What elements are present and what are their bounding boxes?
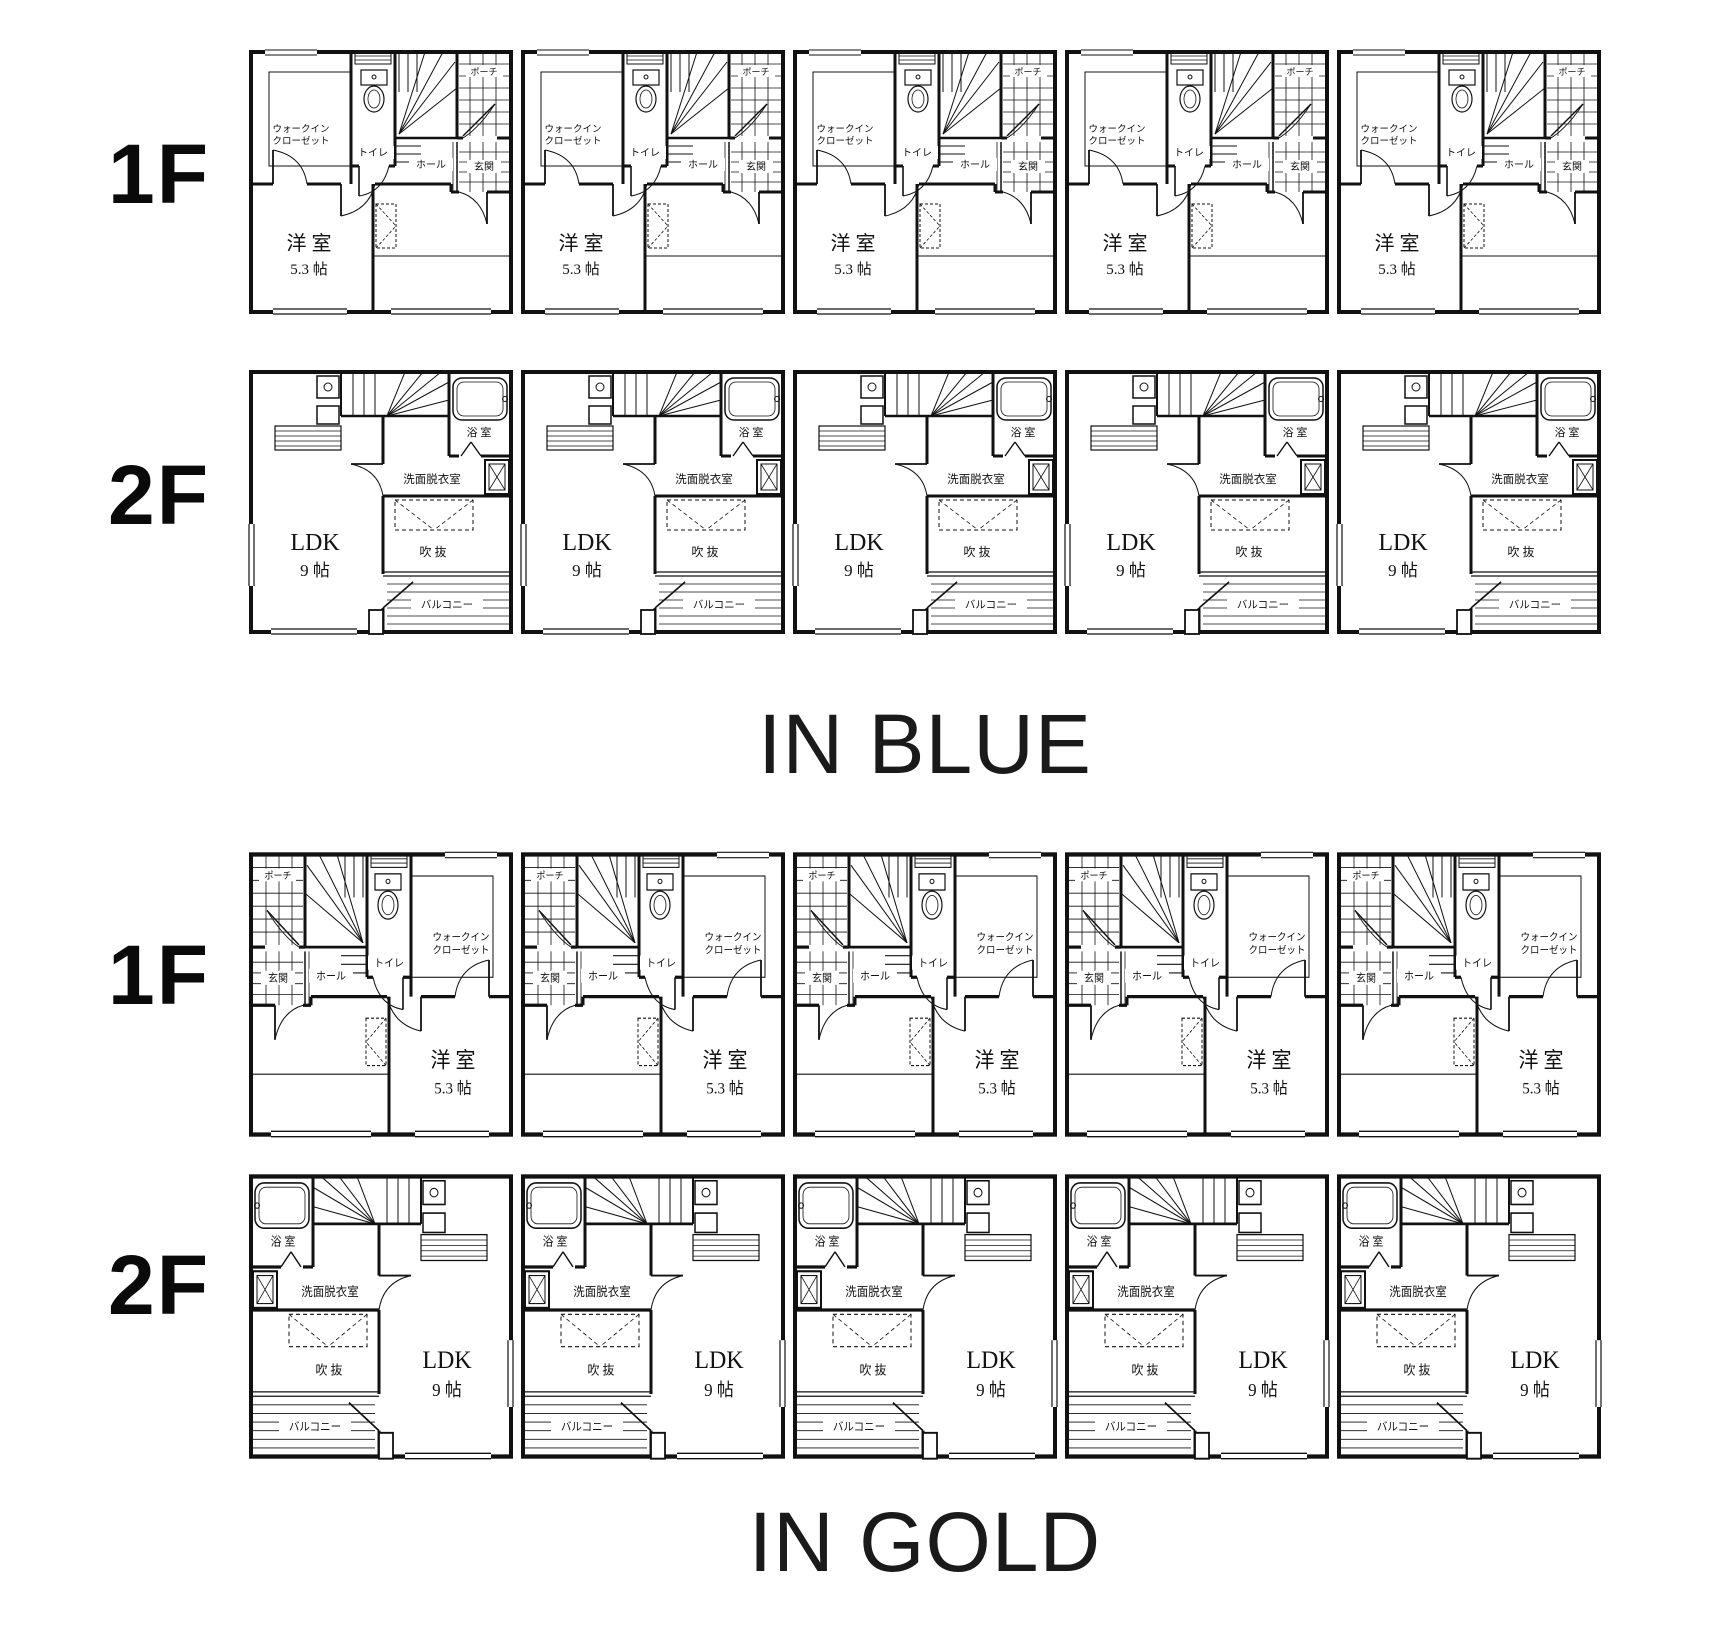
room-label-hall: ホール [960, 159, 990, 171]
floor-plan-unit-in-blue-1f-3: ウォークインクローゼットトイレポーチ玄関ホール洋 室5.3 帖 [789, 46, 1061, 318]
room-label-hall: ホール [1504, 159, 1534, 171]
room-label-balcony: バルコニー [693, 599, 745, 611]
room-label-void: 吹 抜 [1235, 545, 1262, 559]
room-label-porch: ポーチ [537, 871, 564, 882]
room-label-entrance: 玄関 [474, 160, 494, 173]
room-label-western-room: 洋 室 [1519, 1049, 1564, 1073]
floor-plan-unit-in-blue-2f-4: 浴 室洗面脱衣室吹 抜バルコニーLDK9 帖 [1061, 366, 1333, 638]
room-label-walkin-closet-line2: クローゼット [977, 944, 1034, 956]
floor-plan-unit-in-gold-2f-2: 浴 室洗面脱衣室吹 抜バルコニーLDK9 帖 [517, 1170, 789, 1463]
room-label-ldk-size: 9 帖 [1116, 561, 1146, 580]
room-label-ldk-size: 9 帖 [432, 1380, 462, 1401]
room-label-bath: 浴 室 [1555, 425, 1580, 439]
room-label-walkin-closet-line2: クローゼット [544, 135, 601, 147]
room-label-walkin-closet-line2: クローゼット [705, 944, 762, 956]
room-label-western-room: 洋 室 [287, 232, 332, 255]
room-label-walkin-closet-line2: クローゼット [1088, 135, 1145, 147]
room-label-balcony: バルコニー [1237, 599, 1289, 611]
unit-row-gold-1f: ウォークインクローゼットトイレポーチ玄関ホール洋 室5.3 帖ウォークインクロー… [245, 848, 1605, 1141]
room-label-walkin-closet-line2: クローゼット [272, 135, 329, 147]
room-label-ldk: LDK [1106, 530, 1156, 556]
room-label-balcony: バルコニー [965, 599, 1017, 611]
room-label-void: 吹 抜 [1131, 1362, 1159, 1378]
room-label-ldk: LDK [834, 530, 884, 556]
unit-row-gold-2f: 浴 室洗面脱衣室吹 抜バルコニーLDK9 帖浴 室洗面脱衣室吹 抜バルコニーLD… [245, 1170, 1605, 1463]
floor-plan-unit-in-gold-1f-2: ウォークインクローゼットトイレポーチ玄関ホール洋 室5.3 帖 [517, 848, 789, 1141]
room-label-entrance: 玄関 [1018, 160, 1038, 173]
room-label-walkin-closet-line1: ウォークイン [977, 931, 1034, 943]
room-label-walkin-closet-line2: クローゼット [1521, 944, 1578, 956]
room-label-bath: 浴 室 [1283, 425, 1308, 439]
room-label-porch: ポーチ [1353, 871, 1380, 882]
floor-label-blue-1f: 1F [108, 132, 210, 216]
room-label-western-room: 洋 室 [1103, 232, 1148, 255]
floor-plan-unit-in-gold-1f-4: ウォークインクローゼットトイレポーチ玄関ホール洋 室5.3 帖 [1061, 848, 1333, 1141]
room-label-walkin-closet-line2: クローゼット [816, 135, 873, 147]
room-label-ldk: LDK [1238, 1346, 1287, 1374]
room-label-balcony: バルコニー [421, 599, 473, 611]
unit-row-blue-1f: ウォークインクローゼットトイレポーチ玄関ホール洋 室5.3 帖ウォークインクロー… [245, 46, 1605, 318]
room-label-void: 吹 抜 [315, 1362, 343, 1378]
room-label-western-room-size: 5.3 帖 [290, 261, 328, 278]
room-label-bath: 浴 室 [271, 1234, 296, 1249]
room-label-toilet: トイレ [646, 958, 676, 969]
room-label-washroom: 洗面脱衣室 [1491, 472, 1549, 486]
room-label-walkin-closet-line1: ウォークイン [544, 124, 601, 135]
room-label-walkin-closet-line1: ウォークイン [1360, 124, 1417, 135]
room-label-hall: ホール [316, 970, 346, 982]
floor-plan-unit-in-gold-2f-5: 浴 室洗面脱衣室吹 抜バルコニーLDK9 帖 [1333, 1170, 1605, 1463]
room-label-porch: ポーチ [1014, 67, 1041, 77]
room-label-toilet: トイレ [1174, 148, 1204, 159]
room-label-porch: ポーチ [1558, 67, 1585, 77]
room-label-washroom: 洗面脱衣室 [301, 1284, 358, 1300]
room-label-entrance: 玄関 [1084, 971, 1104, 984]
room-label-porch: ポーチ [265, 871, 292, 882]
unit-row-blue-2f: 浴 室洗面脱衣室吹 抜バルコニーLDK9 帖浴 室洗面脱衣室吹 抜バルコニーLD… [245, 366, 1605, 638]
room-label-void: 吹 抜 [1403, 1362, 1431, 1378]
room-label-walkin-closet-line2: クローゼット [1360, 135, 1417, 147]
room-label-toilet: トイレ [374, 958, 404, 969]
floor-plan-unit-in-blue-2f-5: 浴 室洗面脱衣室吹 抜バルコニーLDK9 帖 [1333, 366, 1605, 638]
room-label-walkin-closet-line1: ウォークイン [1088, 124, 1145, 135]
room-label-hall: ホール [588, 970, 618, 982]
room-label-hall: ホール [1132, 970, 1162, 982]
floor-label-gold-2f: 2F [108, 1243, 210, 1327]
room-label-ldk-size: 9 帖 [976, 1380, 1006, 1401]
floor-plan-unit-in-blue-1f-2: ウォークインクローゼットトイレポーチ玄関ホール洋 室5.3 帖 [517, 46, 789, 318]
room-label-washroom: 洗面脱衣室 [845, 1284, 902, 1300]
room-label-toilet: トイレ [630, 148, 660, 159]
room-label-entrance: 玄関 [1356, 971, 1376, 984]
room-label-hall: ホール [1404, 970, 1434, 982]
room-label-walkin-closet-line2: クローゼット [1249, 944, 1306, 956]
room-label-walkin-closet-line1: ウォークイン [272, 124, 329, 135]
room-label-entrance: 玄関 [746, 160, 766, 173]
room-label-hall: ホール [416, 159, 446, 171]
room-label-toilet: トイレ [1462, 958, 1492, 969]
room-label-ldk: LDK [562, 530, 612, 556]
room-label-ldk: LDK [966, 1346, 1015, 1374]
room-label-void: 吹 抜 [587, 1362, 615, 1378]
room-label-western-room-size: 5.3 帖 [706, 1079, 743, 1098]
room-label-ldk-size: 9 帖 [844, 561, 874, 580]
room-label-entrance: 玄関 [1562, 160, 1582, 173]
room-label-balcony: バルコニー [561, 1421, 613, 1433]
room-label-porch: ポーチ [742, 67, 769, 77]
room-label-ldk: LDK [290, 530, 340, 556]
floor-label-gold-1f: 1F [108, 933, 210, 1017]
room-label-porch: ポーチ [1081, 871, 1108, 882]
room-label-ldk: LDK [422, 1346, 471, 1374]
room-label-western-room: 洋 室 [431, 1049, 476, 1073]
floor-plan-sheet: 1F ウォークインクローゼットトイレポーチ玄関ホール洋 室5.3 帖ウォークイン… [0, 0, 1720, 1642]
room-label-western-room-size: 5.3 帖 [434, 1079, 471, 1098]
room-label-hall: ホール [860, 970, 890, 982]
room-label-western-room-size: 5.3 帖 [1250, 1079, 1287, 1098]
floor-label-blue-2f: 2F [108, 453, 210, 537]
room-label-balcony: バルコニー [1377, 1421, 1429, 1433]
room-label-ldk: LDK [1510, 1346, 1559, 1374]
room-label-western-room: 洋 室 [831, 232, 876, 255]
room-label-hall: ホール [1232, 159, 1262, 171]
floor-plan-unit-in-blue-1f-5: ウォークインクローゼットトイレポーチ玄関ホール洋 室5.3 帖 [1333, 46, 1605, 318]
room-label-western-room: 洋 室 [703, 1049, 748, 1073]
room-label-toilet: トイレ [1190, 958, 1220, 969]
room-label-toilet: トイレ [358, 148, 388, 159]
room-label-washroom: 洗面脱衣室 [1219, 472, 1277, 486]
room-label-porch: ポーチ [1286, 67, 1313, 77]
room-label-ldk-size: 9 帖 [572, 561, 602, 580]
room-label-ldk: LDK [1378, 530, 1428, 556]
room-label-walkin-closet-line1: ウォークイン [816, 124, 873, 135]
room-label-walkin-closet-line1: ウォークイン [1249, 931, 1306, 943]
room-label-bath: 浴 室 [815, 1234, 840, 1249]
room-label-walkin-closet-line1: ウォークイン [1521, 931, 1578, 943]
floor-plan-unit-in-blue-1f-1: ウォークインクローゼットトイレポーチ玄関ホール洋 室5.3 帖 [245, 46, 517, 318]
floor-plan-unit-in-gold-2f-1: 浴 室洗面脱衣室吹 抜バルコニーLDK9 帖 [245, 1170, 517, 1463]
room-label-entrance: 玄関 [268, 971, 288, 984]
building-title-in-gold: IN GOLD [749, 1500, 1101, 1584]
room-label-western-room: 洋 室 [1247, 1049, 1292, 1073]
room-label-western-room: 洋 室 [1375, 232, 1420, 255]
room-label-balcony: バルコニー [1509, 599, 1561, 611]
room-label-western-room: 洋 室 [559, 232, 604, 255]
room-label-washroom: 洗面脱衣室 [573, 1284, 630, 1300]
room-label-porch: ポーチ [809, 871, 836, 882]
room-label-western-room-size: 5.3 帖 [1106, 261, 1144, 278]
room-label-balcony: バルコニー [289, 1421, 341, 1433]
room-label-void: 吹 抜 [859, 1362, 887, 1378]
room-label-porch: ポーチ [470, 67, 497, 77]
room-label-walkin-closet-line1: ウォークイン [705, 931, 762, 943]
room-label-toilet: トイレ [1446, 148, 1476, 159]
room-label-ldk-size: 9 帖 [704, 1380, 734, 1401]
room-label-western-room-size: 5.3 帖 [978, 1079, 1015, 1098]
room-label-hall: ホール [688, 159, 718, 171]
floor-plan-unit-in-gold-1f-1: ウォークインクローゼットトイレポーチ玄関ホール洋 室5.3 帖 [245, 848, 517, 1141]
room-label-walkin-closet-line1: ウォークイン [433, 931, 490, 943]
room-label-void: 吹 抜 [691, 545, 718, 559]
room-label-toilet: トイレ [918, 958, 948, 969]
floor-plan-unit-in-gold-2f-3: 浴 室洗面脱衣室吹 抜バルコニーLDK9 帖 [789, 1170, 1061, 1463]
room-label-void: 吹 抜 [963, 545, 990, 559]
room-label-bath: 浴 室 [1359, 1234, 1384, 1249]
floor-plan-unit-in-blue-2f-3: 浴 室洗面脱衣室吹 抜バルコニーLDK9 帖 [789, 366, 1061, 638]
room-label-ldk-size: 9 帖 [1388, 561, 1418, 580]
room-label-entrance: 玄関 [1290, 160, 1310, 173]
room-label-western-room-size: 5.3 帖 [834, 261, 872, 278]
room-label-toilet: トイレ [902, 148, 932, 159]
room-label-bath: 浴 室 [467, 425, 492, 439]
floor-plan-unit-in-gold-1f-3: ウォークインクローゼットトイレポーチ玄関ホール洋 室5.3 帖 [789, 848, 1061, 1141]
room-label-ldk-size: 9 帖 [300, 561, 330, 580]
floor-plan-unit-in-gold-1f-5: ウォークインクローゼットトイレポーチ玄関ホール洋 室5.3 帖 [1333, 848, 1605, 1141]
room-label-ldk-size: 9 帖 [1520, 1380, 1550, 1401]
building-title-in-blue: IN BLUE [758, 702, 1092, 786]
room-label-bath: 浴 室 [1011, 425, 1036, 439]
room-label-western-room-size: 5.3 帖 [562, 261, 600, 278]
room-label-western-room-size: 5.3 帖 [1522, 1079, 1559, 1098]
room-label-ldk: LDK [694, 1346, 743, 1374]
room-label-washroom: 洗面脱衣室 [947, 472, 1005, 486]
room-label-bath: 浴 室 [739, 425, 764, 439]
room-label-walkin-closet-line2: クローゼット [433, 944, 490, 956]
room-label-entrance: 玄関 [812, 971, 832, 984]
room-label-balcony: バルコニー [1105, 1421, 1157, 1433]
room-label-bath: 浴 室 [543, 1234, 568, 1249]
room-label-ldk-size: 9 帖 [1248, 1380, 1278, 1401]
floor-plan-unit-in-blue-2f-2: 浴 室洗面脱衣室吹 抜バルコニーLDK9 帖 [517, 366, 789, 638]
room-label-washroom: 洗面脱衣室 [675, 472, 733, 486]
room-label-void: 吹 抜 [419, 545, 446, 559]
room-label-western-room: 洋 室 [975, 1049, 1020, 1073]
room-label-washroom: 洗面脱衣室 [1389, 1284, 1446, 1300]
room-label-western-room-size: 5.3 帖 [1378, 261, 1416, 278]
room-label-washroom: 洗面脱衣室 [1117, 1284, 1174, 1300]
room-label-entrance: 玄関 [540, 971, 560, 984]
room-label-void: 吹 抜 [1507, 545, 1534, 559]
room-label-balcony: バルコニー [833, 1421, 885, 1433]
room-label-washroom: 洗面脱衣室 [403, 472, 461, 486]
floor-plan-unit-in-gold-2f-4: 浴 室洗面脱衣室吹 抜バルコニーLDK9 帖 [1061, 1170, 1333, 1463]
room-label-bath: 浴 室 [1087, 1234, 1112, 1249]
floor-plan-unit-in-blue-2f-1: 浴 室洗面脱衣室吹 抜バルコニーLDK9 帖 [245, 366, 517, 638]
floor-plan-unit-in-blue-1f-4: ウォークインクローゼットトイレポーチ玄関ホール洋 室5.3 帖 [1061, 46, 1333, 318]
